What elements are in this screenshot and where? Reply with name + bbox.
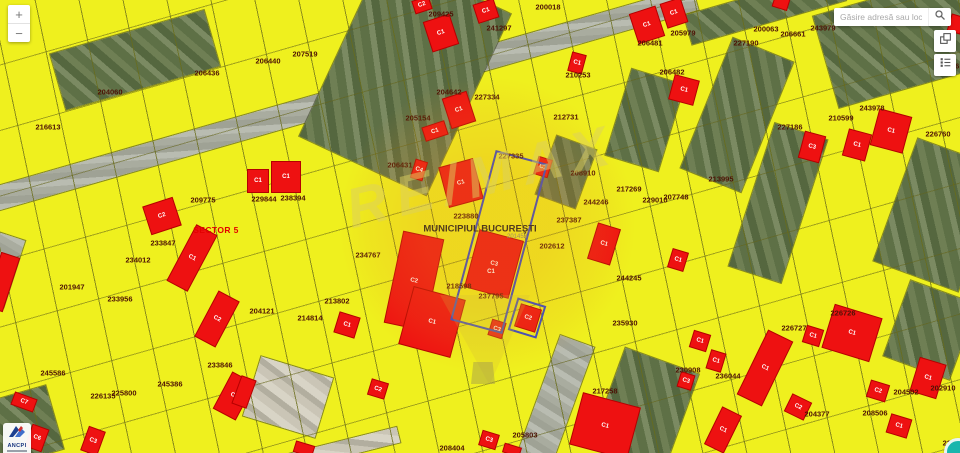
building[interactable]: C1 — [843, 130, 871, 161]
building[interactable] — [503, 444, 521, 453]
search-box — [834, 8, 951, 26]
parcel-number-label: 202612 — [539, 242, 564, 251]
parcel-number-label: 241297 — [486, 24, 511, 33]
parcel-number-label: 226727 — [781, 324, 806, 333]
parcel-number-label: 244245 — [616, 274, 641, 283]
parcel-number-label: 227335 — [498, 152, 523, 161]
building-label: C1 — [457, 179, 466, 187]
building[interactable]: C1 — [707, 350, 726, 371]
ancpi-emblem-icon — [8, 425, 26, 443]
parcel-number-label: 208910 — [570, 169, 595, 178]
building[interactable] — [0, 253, 19, 311]
building-label: C3 — [88, 437, 97, 445]
building-label: C1 — [808, 332, 817, 340]
building-label: C1 — [887, 127, 896, 135]
building-label: C2 — [212, 315, 222, 324]
parcel-number-label: 200063 — [753, 25, 778, 34]
building-label: C2 — [373, 385, 382, 393]
building-label: C2 — [793, 403, 803, 412]
parcel-number-label: 213995 — [708, 175, 733, 184]
parcel-number-label: 207748 — [663, 193, 688, 202]
aerial-photo-strip — [50, 10, 220, 110]
building-label: C3 — [808, 143, 817, 151]
parcel-number-label: 243978 — [859, 104, 884, 113]
search-button[interactable] — [928, 8, 951, 26]
legend-button[interactable] — [934, 54, 956, 76]
map-canvas[interactable]: RE/MAX SECTOR 5 MUNICIPIUL BUCUREŞTI 201… — [0, 0, 960, 453]
building-label: C1 — [669, 9, 678, 17]
building-label: C1 — [282, 174, 290, 180]
building[interactable]: C2 — [196, 292, 239, 346]
zoom-control: + − — [8, 5, 30, 42]
building-label: C1 — [430, 127, 439, 135]
search-input[interactable] — [834, 12, 928, 22]
building-label: C1 — [894, 422, 903, 430]
building[interactable]: C1 — [738, 331, 792, 405]
parcel-number-label: 233846 — [207, 361, 232, 370]
selected-parcel-outline — [508, 297, 547, 338]
building-label: C1 — [254, 178, 262, 184]
parcel-number-label: 206482 — [659, 68, 684, 77]
parcel-number-label: 206431 — [387, 161, 412, 170]
parcel-number-label: 243979 — [810, 24, 835, 33]
parcel-number-label: 204121 — [249, 307, 274, 316]
parcel-number-label: 205154 — [405, 114, 430, 123]
parcel-number-label: 204642 — [436, 88, 461, 97]
ancpi-logo-subtext-bar — [7, 450, 27, 452]
parcel-number-label: 204060 — [97, 88, 122, 97]
aerial-photo-strip — [873, 139, 960, 292]
search-icon — [934, 8, 946, 26]
parcel-number-label: 227334 — [474, 93, 499, 102]
parcel-number-label: 229844 — [251, 195, 276, 204]
ancpi-logo-text: ANCPI — [7, 443, 26, 449]
parcel-number-label: 223880 — [453, 212, 478, 221]
sector-label: SECTOR 5 — [193, 225, 239, 235]
parcel-number-label: 205803 — [512, 431, 537, 440]
parcel-number-label: 226726 — [830, 309, 855, 318]
parcel-number-label: 234012 — [125, 256, 150, 265]
building-label: C1 — [481, 7, 490, 15]
building-label: C1 — [601, 422, 610, 430]
ancpi-logo: ANCPI — [3, 423, 31, 453]
parcel-number-label: 227186 — [777, 123, 802, 132]
parcel-number-label: 200018 — [535, 3, 560, 12]
parcel-number-label: 206440 — [255, 57, 280, 66]
building[interactable]: C1 — [705, 408, 741, 453]
building-label: C1 — [487, 269, 495, 275]
building[interactable]: C1 — [439, 159, 482, 206]
building-label: C1 — [711, 357, 720, 365]
building-label: C1 — [454, 106, 463, 114]
parcel-number-label: 245586 — [40, 369, 65, 378]
building-label: C2 — [873, 387, 882, 395]
building-label: C1 — [718, 426, 728, 435]
building[interactable]: C1 — [690, 331, 710, 351]
building[interactable]: C3 — [81, 427, 104, 453]
parcel-number-label: 236044 — [715, 372, 740, 381]
aerial-photo-strip — [243, 356, 333, 437]
building-label: C4 — [414, 166, 423, 174]
parcel-number-label: 225800 — [111, 389, 136, 398]
parcel-number-label: 201947 — [59, 283, 84, 292]
building-label: C1 — [342, 321, 351, 329]
parcel-number-label: 208506 — [862, 409, 887, 418]
building-label: C1 — [573, 59, 582, 67]
building[interactable]: C1 — [168, 225, 217, 290]
parcel-number-label: 217269 — [616, 185, 641, 194]
parcel-number-label: 226760 — [925, 130, 950, 139]
basemap-icon — [939, 32, 952, 50]
building[interactable] — [294, 442, 314, 453]
parcel-number-label: 207519 — [292, 50, 317, 59]
parcel-number-label: 235930 — [612, 319, 637, 328]
parcel-number-label: 234767 — [355, 251, 380, 260]
building-label: C7 — [19, 398, 28, 406]
parcel-number-label: 227190 — [733, 39, 758, 48]
building-label: C2 — [410, 277, 419, 284]
parcel-number-label: 209425 — [428, 10, 453, 19]
parcel-number-label: 237795 — [478, 292, 503, 301]
building-label: C2 — [417, 1, 426, 9]
legend-list-icon — [939, 56, 952, 74]
parcel-number-label: 218598 — [446, 282, 471, 291]
building-label: C6 — [32, 434, 41, 442]
building-label: C1 — [695, 337, 704, 345]
zoom-out-button[interactable]: − — [8, 24, 30, 42]
parcel-number-label: 214814 — [297, 314, 322, 323]
parcel-number-label: 216613 — [35, 123, 60, 132]
building[interactable]: C1 — [668, 249, 688, 271]
parcel-number-label: 206661 — [780, 30, 805, 39]
parcel-number-label: 202910 — [930, 384, 955, 393]
parcel-number-label: 210253 — [565, 71, 590, 80]
building-label: C2 — [157, 212, 166, 220]
building[interactable]: C1 — [272, 162, 300, 192]
parcel-number-label: 212731 — [553, 113, 578, 122]
parcel-number-label: 230908 — [675, 366, 700, 375]
building[interactable]: C1 — [887, 414, 911, 437]
parcel-number-label: 204502 — [893, 388, 918, 397]
building-label: C1 — [680, 86, 689, 94]
building-label: C1 — [760, 364, 770, 373]
parcel-number-label: 206436 — [194, 69, 219, 78]
building[interactable]: C1 — [588, 224, 620, 265]
parcel-number-label: 245386 — [157, 380, 182, 389]
parcel-number-label: 205979 — [670, 29, 695, 38]
building[interactable]: C1 — [871, 109, 911, 152]
building[interactable]: C1 — [248, 170, 268, 192]
parcel-number-label: 213802 — [324, 297, 349, 306]
building-label: C1 — [673, 256, 682, 264]
building[interactable]: C2 — [867, 381, 889, 402]
building-label: C1 — [642, 21, 651, 29]
parcel-number-label: 237387 — [556, 216, 581, 225]
municipality-label: MUNICIPIUL BUCUREŞTI — [423, 224, 536, 235]
building-label: C1 — [923, 374, 932, 382]
parcel-number-label: 206481 — [637, 39, 662, 48]
parcel-number-label: 233847 — [150, 239, 175, 248]
building-label: C1 — [436, 29, 445, 37]
zoom-in-button[interactable]: + — [8, 5, 30, 23]
building-label: C1 — [847, 329, 856, 337]
parcel-number-label: 238394 — [280, 194, 305, 203]
building[interactable]: C3 — [479, 431, 498, 449]
building-label: C3 — [681, 377, 690, 385]
building[interactable]: C2 — [143, 198, 180, 234]
building-label: C1 — [428, 318, 437, 326]
parcel-number-label: 233956 — [107, 295, 132, 304]
parcel-number-label: 204377 — [804, 410, 829, 419]
basemap-switch-button[interactable] — [934, 30, 956, 52]
building-label: C1 — [187, 254, 197, 263]
building-label: C3 — [484, 436, 493, 444]
building[interactable]: C1 — [335, 313, 360, 338]
parcel-number-label: 217258 — [592, 387, 617, 396]
building-label: C1 — [599, 240, 608, 248]
parcel-number-label: 244246 — [583, 198, 608, 207]
parcel-number-label: 209775 — [190, 196, 215, 205]
municipality-code-label: 201452 — [507, 234, 527, 240]
parcel-number-label: 208404 — [439, 444, 464, 453]
building-label: C1 — [853, 141, 862, 149]
remax-balloon-basket — [471, 362, 495, 384]
parcel-number-label: 210599 — [828, 114, 853, 123]
building[interactable]: C2 — [368, 379, 388, 398]
